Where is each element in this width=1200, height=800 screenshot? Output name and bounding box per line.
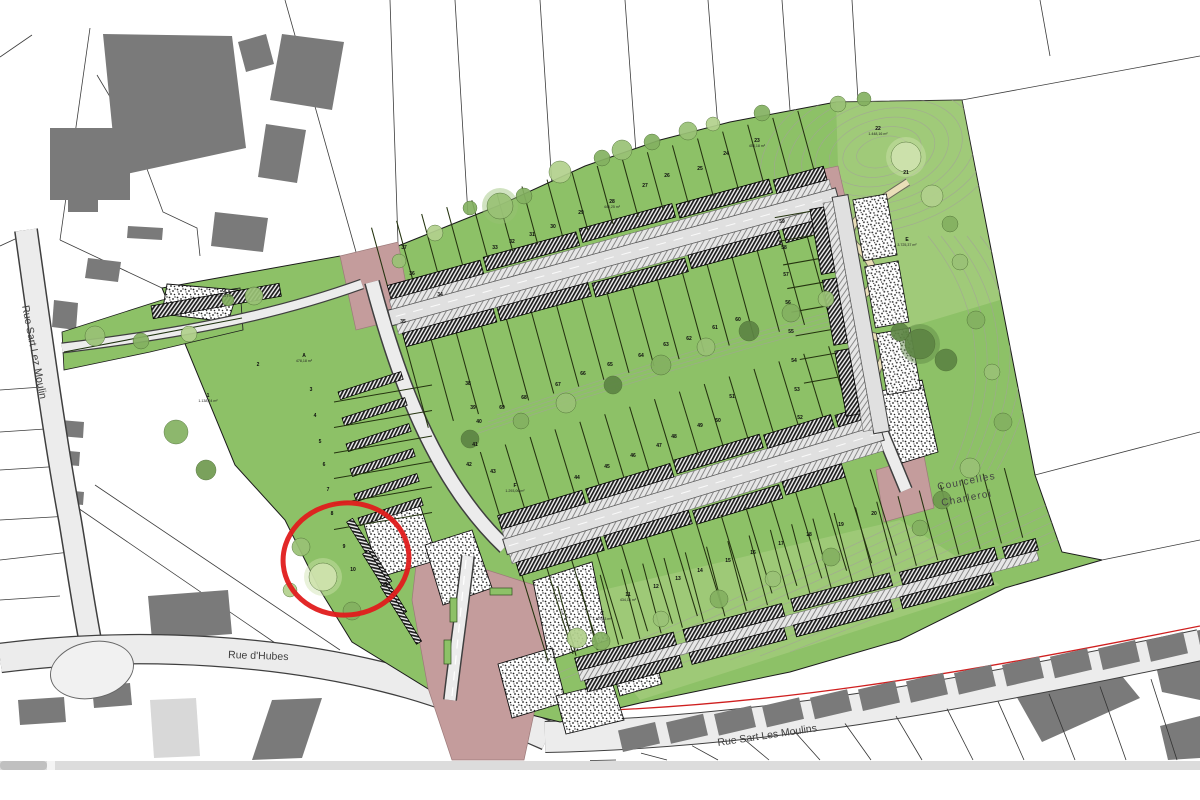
horizontal-scrollbar-track[interactable] — [0, 761, 1200, 770]
tree-icon — [857, 92, 871, 106]
plot-number-label: 31 — [529, 232, 535, 238]
plot-number-label: 10 — [350, 567, 356, 573]
tree-icon — [85, 326, 105, 346]
plot-number-label: 37 — [401, 245, 407, 251]
tree-icon — [942, 216, 958, 232]
plot-area-label: 1.138,24 m² — [198, 399, 218, 403]
plot-number-label: 56 — [785, 300, 791, 306]
tree-icon — [594, 150, 610, 166]
tree-icon — [830, 96, 846, 112]
plot-area-label: 3.725,37 m² — [897, 243, 917, 247]
plot-number-label: 53 — [794, 387, 800, 393]
scrollbar-gap — [47, 761, 55, 770]
plot-number-label: 21 — [903, 170, 909, 176]
plot-number-label: 67 — [555, 382, 561, 388]
plot-number-label: 47 — [656, 443, 662, 449]
street-label-rue-dhubes: Rue d'Hubes — [228, 649, 289, 663]
tree-icon — [612, 140, 632, 160]
plot-area-label: 1.448,16 m² — [868, 132, 888, 136]
plot-number-label: 51 — [729, 394, 735, 400]
tree-icon — [549, 161, 571, 183]
plan-viewer: Bassin d'orage — [0, 0, 1200, 800]
plot-number-label: D — [384, 582, 388, 588]
plot-number-label: 55 — [788, 329, 794, 335]
tree-icon — [309, 563, 337, 591]
plot-number-label: 2 — [257, 362, 260, 368]
site-plan-canvas[interactable]: Bassin d'orage — [0, 0, 1200, 762]
tree-icon — [921, 185, 943, 207]
plot-number-label: 58 — [781, 245, 787, 251]
plot-number-label: 4 — [314, 413, 317, 419]
plot-number-label: 30 — [550, 224, 556, 230]
plot-number-label: 48 — [671, 434, 677, 440]
tree-icon — [427, 225, 443, 241]
tree-icon — [710, 590, 728, 608]
plot-number-label: 50 — [715, 418, 721, 424]
tree-icon — [463, 201, 477, 215]
tree-icon — [567, 628, 587, 648]
tree-icon — [164, 420, 188, 444]
plot-number-label: 13 — [675, 576, 681, 582]
tree-icon — [739, 321, 759, 341]
tree-icon — [697, 338, 715, 356]
plot-number-label: 54 — [791, 358, 797, 364]
tree-icon — [818, 291, 834, 307]
plot-area-label: 1.129,63 m² — [592, 617, 612, 621]
plot-number-label: 46 — [630, 453, 636, 459]
plot-number-label: 6 — [323, 462, 326, 468]
tree-icon — [994, 413, 1012, 431]
plot-number-label: 43 — [490, 469, 496, 475]
tree-icon — [952, 254, 968, 270]
plot-number-label: 26 — [664, 173, 670, 179]
plot-number-label: 36 — [409, 271, 415, 277]
plot-number-label: 25 — [697, 166, 703, 172]
tree-icon — [392, 254, 406, 268]
tree-icon — [679, 122, 697, 140]
horizontal-scrollbar-thumb[interactable] — [0, 761, 47, 770]
tree-icon — [513, 413, 529, 429]
plot-area-label: 1.129,27 m² — [214, 294, 234, 298]
tree-icon — [592, 632, 610, 650]
plot-number-label: 42 — [466, 462, 472, 468]
plot-number-label: 3 — [310, 387, 313, 393]
tree-icon — [935, 349, 957, 371]
plot-number-label: 60 — [735, 317, 741, 323]
plot-number-label: 7 — [327, 487, 330, 493]
plot-number-label: 35 — [400, 319, 406, 325]
plot-number-label: 38 — [465, 381, 471, 387]
tree-icon — [984, 364, 1000, 380]
plot-number-label: 24 — [723, 151, 729, 157]
tree-icon — [912, 520, 928, 536]
plot-area-label: 478,18 m² — [296, 359, 313, 363]
plot-number-label: 16 — [750, 550, 756, 556]
plot-number-label: 8 — [331, 511, 334, 517]
plot-number-label: 66 — [580, 371, 586, 377]
tree-icon — [604, 376, 622, 394]
plot-number-label: 29 — [578, 210, 584, 216]
plot-area-label: 1.293,06 m² — [505, 489, 525, 493]
plot-number-label: 52 — [797, 415, 803, 421]
plot-number-label: 9 — [343, 544, 346, 550]
plot-number-label: 41 — [472, 442, 478, 448]
plot-number-label: 45 — [604, 464, 610, 470]
tree-icon — [653, 611, 669, 627]
plot-number-label: 12 — [653, 584, 659, 590]
tree-icon — [516, 188, 532, 204]
plot-number-label: 20 — [871, 511, 877, 517]
tree-icon — [245, 287, 263, 305]
plot-number-label: 49 — [697, 423, 703, 429]
tree-icon — [644, 134, 660, 150]
plot-area-label: 453,18 m² — [749, 144, 766, 148]
tree-icon — [891, 142, 921, 172]
tree-icon — [133, 333, 149, 349]
tree-icon — [754, 105, 770, 121]
tree-icon — [651, 355, 671, 375]
plot-number-label: 18 — [806, 532, 812, 538]
tree-icon — [822, 548, 840, 566]
plot-number-label: 27 — [642, 183, 648, 189]
plot-number-label: 19 — [838, 522, 844, 528]
plot-number-label: 39 — [470, 405, 476, 411]
tree-icon — [487, 193, 513, 219]
tree-icon — [196, 460, 216, 480]
plot-number-label: 63 — [663, 342, 669, 348]
tree-icon — [782, 304, 800, 322]
plot-number-label: 5 — [319, 439, 322, 445]
plot-number-label: 64 — [638, 353, 644, 359]
plot-number-label: 69 — [499, 405, 505, 411]
tree-icon — [967, 311, 985, 329]
plot-area-label: 434,16 m² — [620, 598, 637, 602]
plot-number-label: 59 — [779, 219, 785, 225]
plot-number-label: 14 — [697, 568, 703, 574]
tree-icon — [181, 326, 197, 342]
plot-number-label: 40 — [476, 419, 482, 425]
plot-number-label: 33 — [492, 245, 498, 251]
plot-number-label: 34 — [437, 292, 443, 298]
plot-number-label: 61 — [712, 325, 718, 331]
tree-icon — [556, 393, 576, 413]
plot-number-label: 62 — [686, 336, 692, 342]
tree-icon — [292, 538, 310, 556]
tree-icon — [905, 329, 935, 359]
plot-area-label: 446,25 m² — [604, 205, 621, 209]
plot-number-label: 65 — [607, 362, 613, 368]
plot-number-label: 44 — [574, 475, 580, 481]
tree-icon — [706, 117, 720, 131]
plot-number-label: 32 — [509, 239, 515, 245]
tree-icon — [891, 323, 909, 341]
plot-number-label: 57 — [783, 272, 789, 278]
plot-number-label: 68 — [521, 395, 527, 401]
plot-number-label: 15 — [725, 558, 731, 564]
tree-icon — [765, 571, 781, 587]
plot-number-label: 17 — [778, 541, 784, 547]
